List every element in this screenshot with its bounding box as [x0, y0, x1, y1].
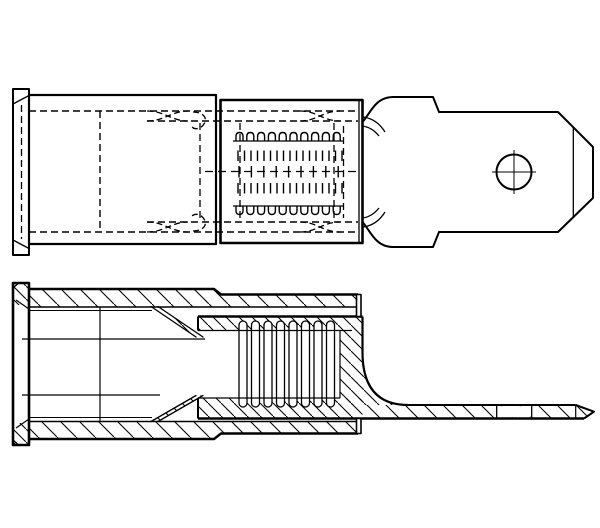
- serration-comb-top: [236, 133, 340, 142]
- sleeve-cap-bottom: [357, 419, 362, 434]
- rib: [239, 321, 247, 407]
- weave-top-right: [300, 111, 340, 121]
- weave-top-left: [147, 111, 188, 121]
- rib: [302, 321, 310, 407]
- plan-view: [13, 89, 593, 255]
- blade-section-hatch: [363, 405, 595, 419]
- tab-blade: [363, 97, 594, 247]
- dimple-centerlines: [492, 150, 536, 194]
- fillet-hatch: [340, 331, 408, 406]
- section-view: [13, 283, 594, 445]
- blade-outline: [363, 97, 594, 247]
- dimple-gap: [498, 406, 531, 417]
- hidden-wire-barrel: [29, 111, 358, 232]
- sleeve-wall-hatch-bottom: [29, 422, 358, 440]
- bore-lines: [22, 339, 205, 395]
- rib: [277, 321, 285, 407]
- weave-bottom-right: [300, 222, 340, 232]
- rib: [252, 321, 260, 407]
- detent-dimple: [492, 150, 536, 194]
- sleeve-wall-hatch-top: [29, 289, 358, 307]
- section-entry-flange: [13, 283, 29, 445]
- terminal-drawing: [0, 0, 600, 528]
- neck-wing-curves: [363, 117, 386, 227]
- drawing-canvas: [0, 0, 600, 528]
- sleeve-cap-top: [357, 295, 362, 317]
- rib: [264, 321, 272, 407]
- weave-bottom-left: [147, 222, 188, 232]
- serrations: [205, 133, 358, 215]
- rib: [314, 321, 322, 407]
- serration-ticks-upper: [238, 151, 342, 162]
- wire-bore: [22, 307, 205, 422]
- entry-flange: [13, 89, 29, 255]
- serration-comb-bottom: [236, 206, 340, 215]
- flange-flare-lines: [16, 300, 29, 428]
- rib: [289, 321, 297, 407]
- rib: [327, 321, 335, 407]
- serration-ticks-lower: [238, 183, 342, 194]
- serration-ribs: [239, 321, 335, 407]
